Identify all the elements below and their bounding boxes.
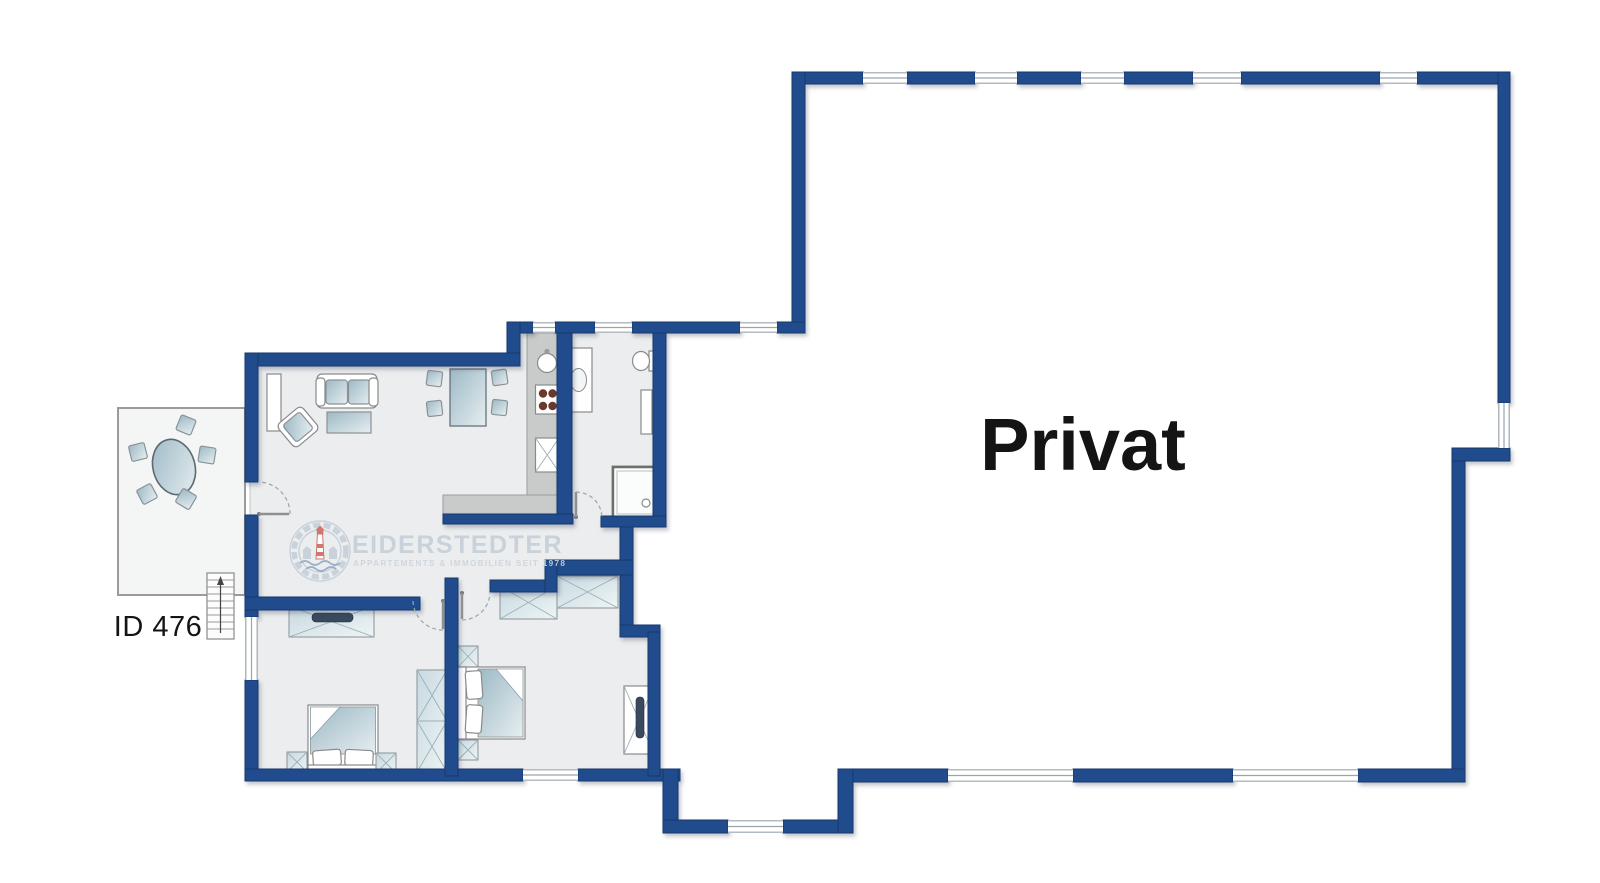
tv-icon bbox=[636, 697, 644, 738]
window bbox=[245, 617, 258, 680]
tv-icon bbox=[312, 613, 353, 622]
window bbox=[740, 322, 777, 333]
bookshelf-icon bbox=[267, 374, 281, 431]
shower-icon bbox=[612, 466, 659, 518]
radiator-icon bbox=[641, 390, 652, 434]
window bbox=[863, 72, 907, 84]
listing-id-label: ID 476 bbox=[114, 611, 202, 643]
window bbox=[533, 322, 555, 333]
dishwasher-icon bbox=[536, 438, 560, 472]
dining-table-icon bbox=[450, 369, 486, 426]
lighthouse-icon bbox=[290, 521, 350, 581]
window bbox=[1233, 769, 1358, 782]
window bbox=[1193, 72, 1241, 84]
window bbox=[728, 820, 783, 833]
window bbox=[1380, 72, 1417, 84]
watermark-brand: EIDERSTEDTER bbox=[352, 531, 563, 559]
wardrobe-icon bbox=[417, 670, 447, 772]
dresser-icon bbox=[289, 606, 374, 637]
terrace bbox=[118, 408, 245, 595]
window bbox=[1498, 403, 1510, 448]
floor-plan-page: EIDERSTEDTER APPARTEMENTS & IMMOBILIEN S… bbox=[0, 0, 1600, 883]
coffee-table-icon bbox=[327, 412, 371, 433]
stove-icon bbox=[536, 385, 560, 414]
window bbox=[595, 322, 632, 333]
floor-plan-drawing: EIDERSTEDTER APPARTEMENTS & IMMOBILIEN S… bbox=[0, 0, 1600, 883]
watermark-tagline: APPARTEMENTS & IMMOBILIEN SEIT 1978 bbox=[353, 559, 566, 568]
window bbox=[975, 72, 1017, 84]
window bbox=[1081, 72, 1124, 84]
double-bed-icon bbox=[308, 705, 378, 773]
double-bed-icon bbox=[457, 667, 525, 739]
window bbox=[948, 769, 1073, 782]
sofa-icon bbox=[316, 374, 378, 408]
private-area-label: Privat bbox=[980, 403, 1186, 486]
window bbox=[523, 769, 578, 781]
entrance-stairs bbox=[207, 573, 234, 639]
